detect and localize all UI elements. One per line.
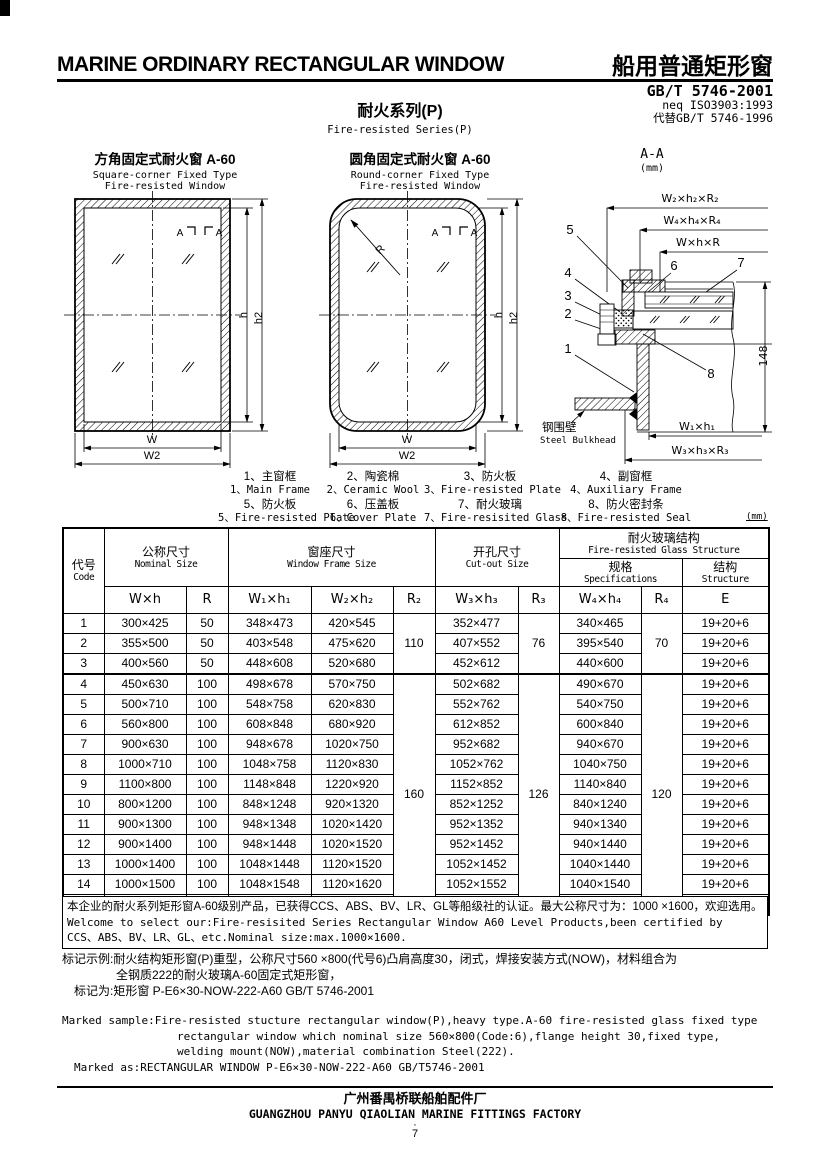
- section-title: A-A: [640, 147, 664, 162]
- table-cell: 1048×1448: [228, 854, 311, 874]
- series-title-en: Fire-resisted Series(P): [290, 124, 510, 136]
- series-title-zh: 耐火系列(P): [290, 97, 510, 121]
- table-cell: 100: [186, 814, 228, 834]
- col-header-w3h3: W₃×h₃: [435, 586, 518, 613]
- marking-en3: welding mount(NOW),material combination …: [62, 1044, 772, 1060]
- table-unit-note: (mm): [746, 512, 768, 522]
- table-cell: 612×852: [435, 714, 518, 734]
- table-cell: 490×670: [559, 674, 641, 695]
- bulkhead-label-en: Steel Bulkhead: [540, 436, 616, 446]
- col-header-w2h2: W₂×h₂: [311, 586, 393, 613]
- col-header-r: R: [186, 586, 228, 613]
- note-zh: 本企业的耐火系列矩形窗A-60级别产品，已获得CCS、ABS、BV、LR、GL等…: [67, 899, 763, 915]
- table-cell: 448×608: [228, 653, 311, 674]
- callout-5: 5: [566, 222, 573, 237]
- square-title-en2: Fire-resisted Window: [105, 181, 226, 192]
- callout-6: 6: [670, 258, 677, 273]
- table-cell: 355×500: [104, 633, 186, 653]
- dim-whr: W×h×R: [676, 236, 720, 249]
- table-cell: 5: [63, 694, 104, 714]
- table-cell: 900×630: [104, 734, 186, 754]
- table-cell: 19+20+6: [682, 834, 769, 854]
- round-title-en2: Fire-resisted Window: [360, 181, 481, 192]
- table-cell: 800×1200: [104, 794, 186, 814]
- legend-item: 5、防火板5、Fire-resisted Plate: [218, 499, 322, 524]
- table-cell: 1100×800: [104, 774, 186, 794]
- callout-7: 7: [737, 255, 744, 270]
- footer-factory: 广州番禺桥联船舶配件厂 GUANGZHOU PANYU QIAOLIAN MAR…: [0, 1091, 830, 1122]
- table-cell: 19+20+6: [682, 854, 769, 874]
- marking-zh1: 标记示例:耐火结构矩形窗(P)重型，公称尺寸560 ×800(代号6)凸肩高度3…: [62, 951, 772, 967]
- dim-w: W: [147, 434, 158, 446]
- table-cell: 70: [641, 613, 682, 674]
- table-cell: 6: [63, 714, 104, 734]
- dim-h2: h2: [253, 312, 265, 324]
- section-diagram: A-A (mm) W₂×h₂×R₂ W₄×h₄×R₄ W×h×R 5 4 3 2…: [540, 142, 830, 477]
- col-header-r2: R₂: [393, 586, 435, 613]
- bulkhead-label-zh: 钢围壁: [542, 420, 577, 434]
- footer-rule: [57, 1086, 773, 1088]
- table-cell: 19+20+6: [682, 714, 769, 734]
- table-cell: 76: [518, 613, 559, 674]
- table-row: 4450×630100498×678570×750160502×68212649…: [63, 674, 769, 695]
- dim-w2h2r2: W₂×h₂×R₂: [661, 192, 718, 205]
- callout-1: 1: [564, 341, 571, 356]
- table-cell: 352×477: [435, 613, 518, 633]
- legend-item: 8、防火密封条8、Fire-resisted Seal: [556, 499, 696, 524]
- table-cell: 100: [186, 694, 228, 714]
- frame-leg: [637, 344, 649, 430]
- table-cell: 498×678: [228, 674, 311, 695]
- table-cell: 1052×1452: [435, 854, 518, 874]
- table-cell: 50: [186, 633, 228, 653]
- table-cell: 2: [63, 633, 104, 653]
- table-cell: 100: [186, 794, 228, 814]
- glass-upper: [645, 292, 733, 308]
- marking-block: 标记示例:耐火结构矩形窗(P)重型，公称尺寸560 ×800(代号6)凸肩高度3…: [62, 951, 772, 1075]
- table-cell: 348×473: [228, 613, 311, 633]
- steel-bulkhead-plate: [575, 398, 635, 410]
- table-cell: 620×830: [311, 694, 393, 714]
- table-cell: 19+20+6: [682, 774, 769, 794]
- table-cell: 900×1300: [104, 814, 186, 834]
- table-cell: 1048×758: [228, 754, 311, 774]
- table-cell: 500×710: [104, 694, 186, 714]
- section-mark-a: A: [471, 228, 478, 239]
- table-cell: 1052×762: [435, 754, 518, 774]
- page-title-zh: 船用普通矩形窗: [612, 47, 773, 81]
- table-cell: 1120×830: [311, 754, 393, 774]
- table-cell: 548×758: [228, 694, 311, 714]
- callout-3: 3: [564, 288, 571, 303]
- table-cell: 920×1320: [311, 794, 393, 814]
- table-cell: 948×678: [228, 734, 311, 754]
- section-mark-a: A: [177, 228, 184, 239]
- table-cell: 100: [186, 854, 228, 874]
- marking-zh2: 全钢质222的耐火玻璃A-60固定式矩形窗，: [62, 967, 772, 983]
- standard-replace: 代替GB/T 5746-1996: [647, 112, 773, 125]
- table-cell: 570×750: [311, 674, 393, 695]
- table-cell: 11: [63, 814, 104, 834]
- table-row: 1300×42550348×473420×545110352×47776340×…: [63, 613, 769, 633]
- table-cell: 4: [63, 674, 104, 695]
- table-cell: 100: [186, 674, 228, 695]
- standards-block: GB/T 5746-2001 neq ISO3903:1993 代替GB/T 5…: [647, 84, 773, 125]
- scan-artifact: [0, 0, 10, 16]
- table-cell: 1140×840: [559, 774, 641, 794]
- table-cell: 19+20+6: [682, 734, 769, 754]
- legend-item: 4、副窗框4、Auxiliary Frame: [556, 471, 696, 496]
- table-cell: 19+20+6: [682, 674, 769, 695]
- ceramic-wool: [612, 310, 633, 328]
- square-window-diagram: 方角固定式耐火窗 A-60 Square-corner Fixed Type F…: [50, 142, 315, 472]
- series-heading: 耐火系列(P) Fire-resisted Series(P): [290, 97, 510, 136]
- square-title-zh: 方角固定式耐火窗 A-60: [94, 151, 235, 167]
- col-header-w4h4: W₄×h₄: [559, 586, 641, 613]
- table-cell: 520×680: [311, 653, 393, 674]
- round-title-zh: 圆角固定式耐火窗 A-60: [349, 151, 490, 167]
- table-cell: 100: [186, 714, 228, 734]
- nut: [598, 334, 616, 345]
- table-cell: 1220×920: [311, 774, 393, 794]
- table-cell: 848×1248: [228, 794, 311, 814]
- section-mark-a: A: [216, 228, 223, 239]
- table-cell: 552×762: [435, 694, 518, 714]
- table-cell: 475×620: [311, 633, 393, 653]
- table-cell: 1052×1552: [435, 874, 518, 894]
- table-cell: 19+20+6: [682, 613, 769, 633]
- legend-item: 2、陶瓷棉2、Ceramic Wool: [322, 471, 424, 496]
- note-en2: CCS、ABS、BV、LR、GL、etc.Nominal size:max.10…: [67, 930, 763, 945]
- table-cell: 340×465: [559, 613, 641, 633]
- col-header-e: E: [682, 586, 769, 613]
- dim-w: W: [402, 434, 413, 446]
- table-cell: 940×670: [559, 734, 641, 754]
- table-cell: 1148×848: [228, 774, 311, 794]
- factory-name-zh: 广州番禺桥联船舶配件厂: [0, 1091, 830, 1107]
- table-cell: 50: [186, 613, 228, 633]
- col-header-r3: R₃: [518, 586, 559, 613]
- table-cell: 1040×750: [559, 754, 641, 774]
- table-cell: 940×1440: [559, 834, 641, 854]
- col-group-spec: 规格 Specifications: [559, 558, 682, 586]
- table-cell: 19+20+6: [682, 633, 769, 653]
- marking-en1: Marked sample:Fire-resisted stucture rec…: [62, 1013, 772, 1029]
- table-cell: 100: [186, 874, 228, 894]
- table-cell: 948×1448: [228, 834, 311, 854]
- table-cell: 8: [63, 754, 104, 774]
- table-cell: 14: [63, 874, 104, 894]
- table-cell: 900×1400: [104, 834, 186, 854]
- col-header-wxh: W×h: [104, 586, 186, 613]
- table-cell: 940×1340: [559, 814, 641, 834]
- table-cell: 400×560: [104, 653, 186, 674]
- section-mark-a: A: [432, 228, 439, 239]
- table-cell: 50: [186, 653, 228, 674]
- table-cell: 120: [641, 674, 682, 915]
- col-group-glass: 耐火玻璃结构 Fire-resisted Glass Structure: [559, 528, 769, 558]
- col-header-code: 代号 Code: [63, 528, 104, 613]
- standard-number: GB/T 5746-2001: [647, 84, 773, 99]
- table-cell: 160: [393, 674, 435, 915]
- main-frame: [615, 330, 655, 344]
- table-cell: 100: [186, 754, 228, 774]
- col-group-structure: 结构 Structure: [682, 558, 769, 586]
- table-cell: 3: [63, 653, 104, 674]
- round-title-en1: Round-corner Fixed Type: [351, 170, 489, 181]
- table-cell: 948×1348: [228, 814, 311, 834]
- callout-2: 2: [564, 306, 571, 321]
- table-cell: 100: [186, 834, 228, 854]
- table-cell: 19+20+6: [682, 794, 769, 814]
- dimension-table: 代号 Code 公称尺寸 Nominal Size 窗座尺寸 Window Fr…: [62, 527, 770, 916]
- table-cell: 420×545: [311, 613, 393, 633]
- table-cell: 19+20+6: [682, 814, 769, 834]
- dim-w2: W2: [399, 450, 416, 462]
- marking-en2: rectangular window which nominal size 56…: [62, 1029, 772, 1045]
- table-cell: 10: [63, 794, 104, 814]
- table-cell: 680×920: [311, 714, 393, 734]
- table-cell: 1020×1420: [311, 814, 393, 834]
- page-title-en: MARINE ORDINARY RECTANGULAR WINDOW: [57, 53, 504, 77]
- table-body: 1300×42550348×473420×545110352×47776340×…: [63, 613, 769, 915]
- table-cell: 1: [63, 613, 104, 633]
- note-en1: Welcome to select our:Fire-resisited Ser…: [67, 915, 763, 930]
- round-window-diagram: 圆角固定式耐火窗 A-60 Round-corner Fixed Type Fi…: [305, 142, 570, 472]
- table-cell: 600×840: [559, 714, 641, 734]
- table-cell: 840×1240: [559, 794, 641, 814]
- col-group-nominal: 公称尺寸 Nominal Size: [104, 528, 228, 586]
- legend-item: 3、防火板3、Fire-resisted Plate: [424, 471, 556, 496]
- table-cell: 403×548: [228, 633, 311, 653]
- dim-w4h4r4: W₄×h₄×R₄: [663, 214, 721, 227]
- table-cell: 7: [63, 734, 104, 754]
- table-cell: 952×1352: [435, 814, 518, 834]
- table-cell: 450×630: [104, 674, 186, 695]
- table-cell: 1152×852: [435, 774, 518, 794]
- table-cell: 1000×1400: [104, 854, 186, 874]
- table-cell: 540×750: [559, 694, 641, 714]
- table-cell: 1048×1548: [228, 874, 311, 894]
- table-cell: 12: [63, 834, 104, 854]
- table-cell: 110: [393, 613, 435, 674]
- square-title-en1: Square-corner Fixed Type: [93, 170, 238, 181]
- table-cell: 100: [186, 734, 228, 754]
- table-cell: 1020×1520: [311, 834, 393, 854]
- table-cell: 952×682: [435, 734, 518, 754]
- callout-8: 8: [707, 366, 714, 381]
- table-cell: 502×682: [435, 674, 518, 695]
- table-cell: 1020×750: [311, 734, 393, 754]
- page-number: · 7: [0, 1121, 830, 1139]
- table-cell: 1120×1520: [311, 854, 393, 874]
- table-cell: 1040×1540: [559, 874, 641, 894]
- table-cell: 100: [186, 774, 228, 794]
- table-cell: 126: [518, 674, 559, 915]
- table-cell: 1040×1440: [559, 854, 641, 874]
- table-cell: 1000×1500: [104, 874, 186, 894]
- table-cell: 19+20+6: [682, 694, 769, 714]
- callout-4: 4: [564, 265, 571, 280]
- col-header-r4: R₄: [641, 586, 682, 613]
- table-cell: 395×540: [559, 633, 641, 653]
- marking-en4: Marked as:RECTANGULAR WINDOW P-E6×30-NOW…: [62, 1060, 772, 1076]
- dim-h2: h2: [508, 312, 520, 324]
- table-cell: 1000×710: [104, 754, 186, 774]
- table-cell: 560×800: [104, 714, 186, 734]
- table-cell: 13: [63, 854, 104, 874]
- dim-h: h: [238, 312, 250, 318]
- table-cell: 407×552: [435, 633, 518, 653]
- table-cell: 19+20+6: [682, 754, 769, 774]
- legend-item: 1、主窗框1、Main Frame: [218, 471, 322, 496]
- table-cell: 1120×1620: [311, 874, 393, 894]
- col-group-cutout: 开孔尺寸 Cut-out Size: [435, 528, 559, 586]
- dim-w3h3r3: W₃×h₃×R₃: [671, 444, 728, 457]
- dim-w1h1: W₁×h₁: [679, 420, 715, 433]
- table-cell: 852×1252: [435, 794, 518, 814]
- table-cell: 300×425: [104, 613, 186, 633]
- section-unit: (mm): [640, 163, 664, 174]
- table-cell: 19+20+6: [682, 874, 769, 894]
- dim-w2: W2: [144, 450, 161, 462]
- table-cell: 9: [63, 774, 104, 794]
- certification-note: 本企业的耐火系列矩形窗A-60级别产品，已获得CCS、ABS、BV、LR、GL等…: [62, 896, 768, 949]
- dim-h: h: [493, 312, 505, 318]
- dim-148: 148: [757, 346, 770, 367]
- table-cell: 19+20+6: [682, 653, 769, 674]
- legend: 1、主窗框1、Main Frame2、陶瓷棉2、Ceramic Wool3、防火…: [218, 471, 696, 524]
- legend-item: 6、压盖板6、Cover Plate: [322, 499, 424, 524]
- table-cell: 952×1452: [435, 834, 518, 854]
- marking-zh3: 标记为:矩形窗 P-E6×30-NOW-222-A60 GB/T 5746-20…: [62, 983, 772, 999]
- col-group-frame: 窗座尺寸 Window Frame Size: [228, 528, 435, 586]
- table-cell: 452×612: [435, 653, 518, 674]
- col-header-w1h1: W₁×h₁: [228, 586, 311, 613]
- table-cell: 440×600: [559, 653, 641, 674]
- table-cell: 608×848: [228, 714, 311, 734]
- legend-item: 7、耐火玻璃7、Fire-resisited Glass: [424, 499, 556, 524]
- bolt: [600, 304, 614, 334]
